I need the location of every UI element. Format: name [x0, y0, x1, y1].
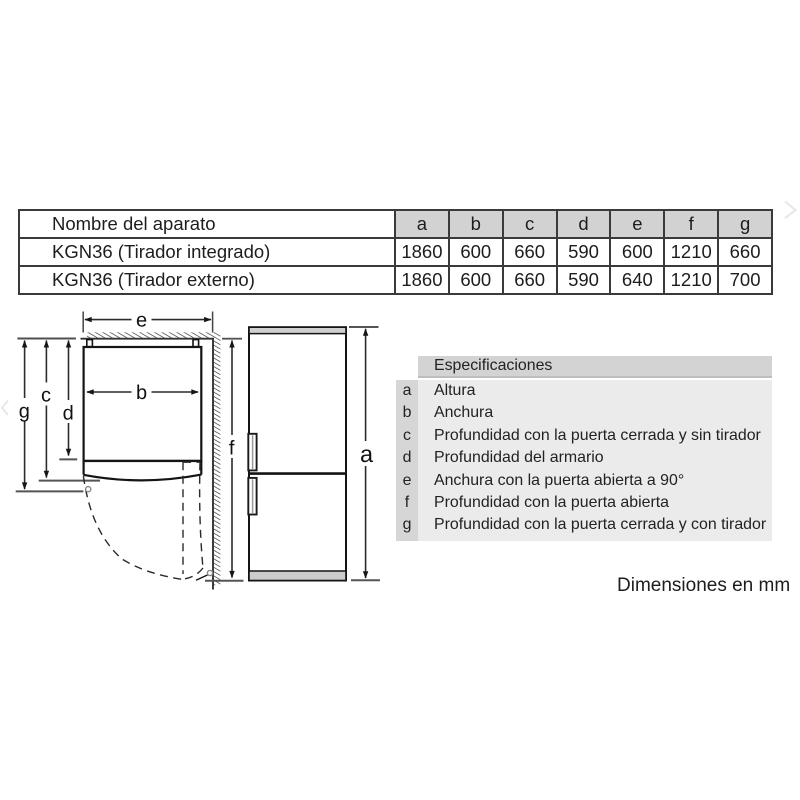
svg-text:e: e	[136, 310, 147, 332]
svg-text:c: c	[41, 385, 51, 407]
svg-text:f: f	[229, 438, 235, 460]
svg-text:d: d	[63, 403, 74, 425]
svg-text:g: g	[19, 401, 30, 423]
svg-text:a: a	[360, 441, 374, 467]
svg-text:b: b	[136, 382, 147, 404]
